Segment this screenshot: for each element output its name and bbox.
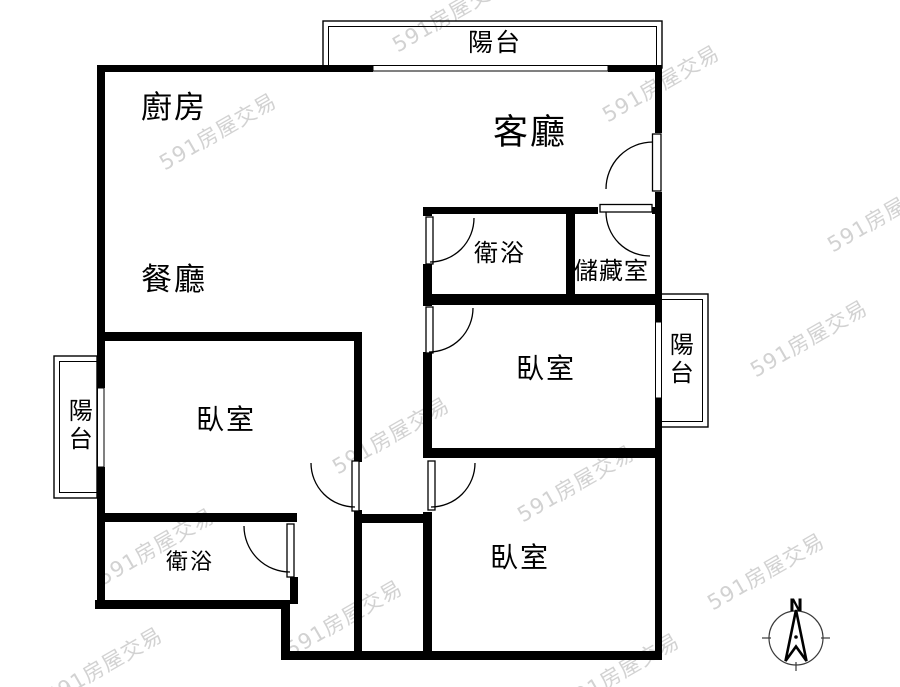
label-bathroom-lower: 衛浴: [166, 551, 214, 574]
label-bedroom-left: 臥室: [196, 405, 256, 434]
floorplan-canvas: 591房屋交易 591房屋交易 591房屋交易 591房屋交易 591房屋交易 …: [0, 0, 900, 687]
label-storage: 儲藏室: [574, 259, 649, 284]
room-labels: 陽台 廚房 客廳 餐廳 衛浴 儲藏室 臥室 臥室 臥室 衛浴 陽台 陽台: [0, 0, 900, 687]
label-dining-room: 餐廳: [141, 264, 207, 297]
label-bathroom-upper: 衛浴: [474, 241, 526, 266]
label-living-room: 客廳: [493, 115, 567, 152]
label-balcony-left: 陽台: [65, 398, 90, 454]
label-bedroom-middle: 臥室: [516, 354, 576, 383]
label-balcony-top: 陽台: [468, 30, 522, 56]
label-kitchen: 廚房: [141, 92, 207, 125]
label-balcony-right: 陽台: [666, 332, 691, 388]
label-bedroom-bottom: 臥室: [490, 543, 550, 572]
